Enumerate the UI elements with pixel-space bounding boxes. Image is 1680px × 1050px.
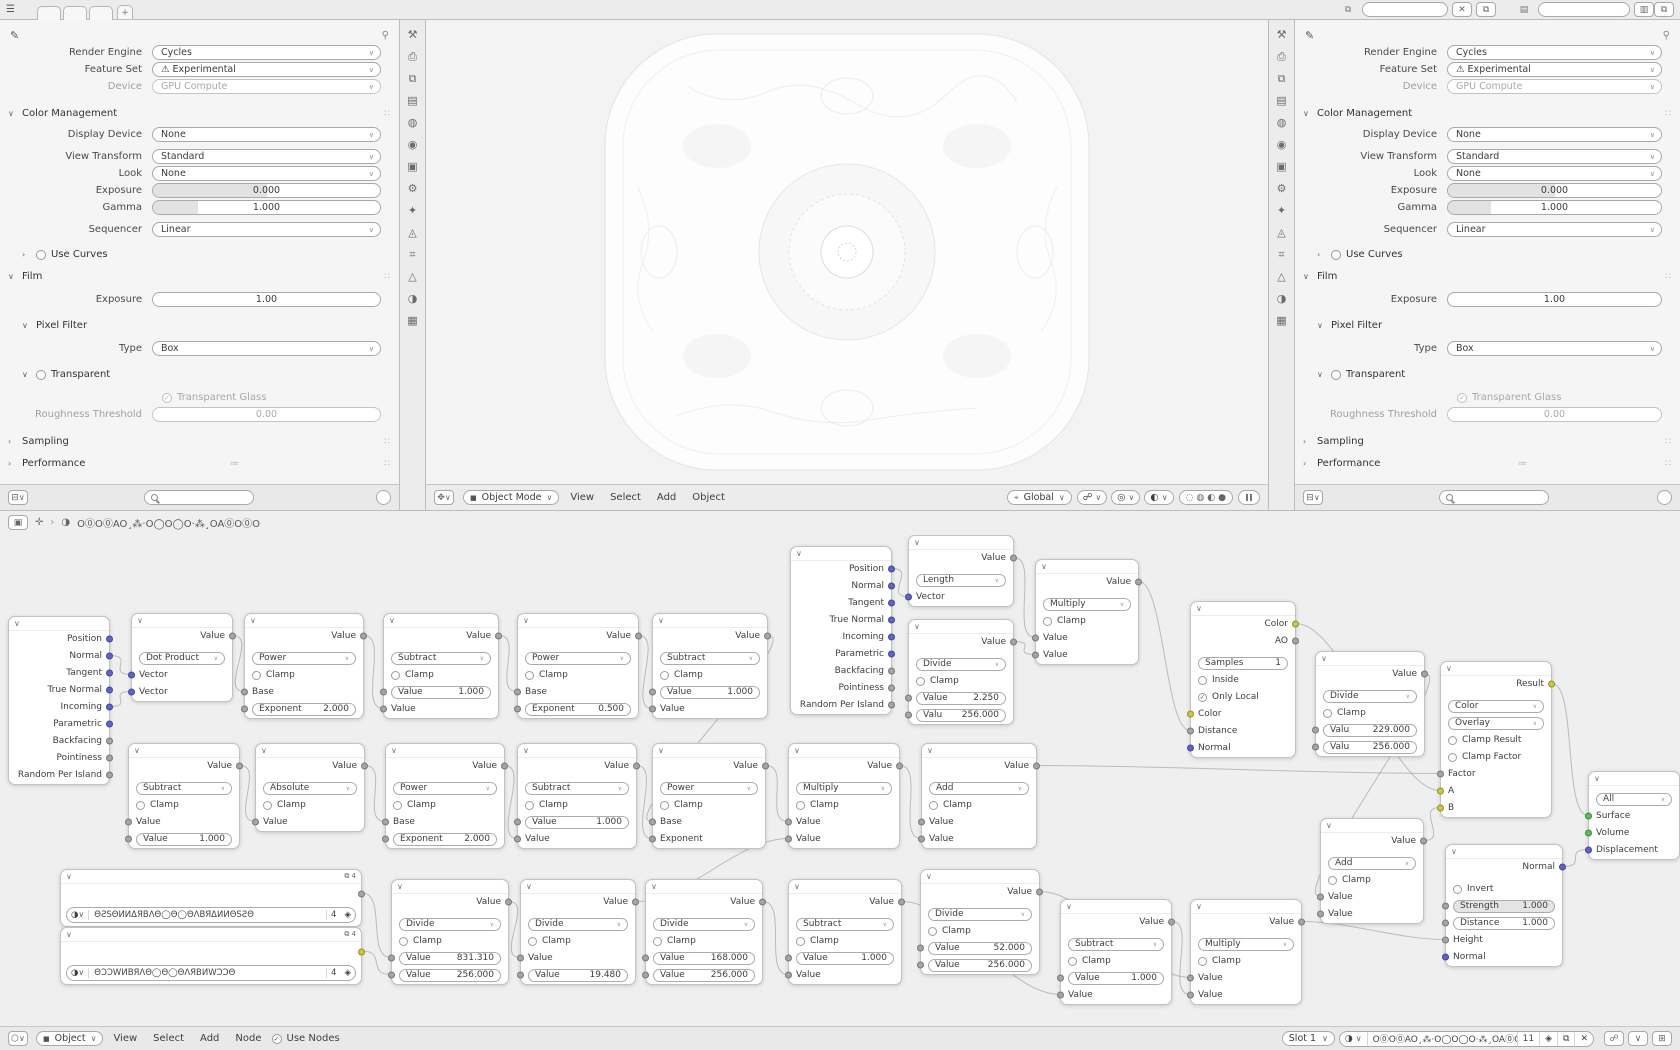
node-sub1[interactable]: ∨ValueSubtract∨ClampValue1.000Value [383, 613, 499, 719]
collapse-chevron-icon[interactable]: ∨ [1041, 562, 1047, 571]
node-div168[interactable]: ∨ValueDivide∨ClampValue168.000Value256.0… [645, 879, 763, 985]
checkbox[interactable]: ✓ [1198, 693, 1207, 702]
checkbox[interactable]: ✓ [162, 393, 172, 403]
node-div19[interactable]: ∨ValueDivide∨ClampValueValue19.480 [520, 879, 636, 985]
prop-exposure[interactable]: 1.00 [152, 292, 381, 307]
prop-sequencer[interactable]: Linear∨ [1447, 222, 1662, 237]
section-transparent[interactable]: ∨Transparent [0, 365, 399, 384]
checkbox[interactable] [136, 801, 145, 810]
grip-icon[interactable]: ∷ [1665, 272, 1672, 282]
node-pow05[interactable]: ∨ValuePower∨ClampBaseExponent0.500 [517, 613, 639, 719]
pin-icon[interactable]: ⚲ [1663, 30, 1670, 41]
prop-render-engine[interactable]: Cycles∨ [152, 45, 381, 60]
workspace-tab-workspace-1[interactable] [37, 6, 61, 20]
node-editor-type-button[interactable]: ⬡∨ [8, 1031, 28, 1046]
socket-out-normal[interactable] [1559, 864, 1566, 871]
node-operation-dropdown[interactable]: Subtract∨ [391, 652, 491, 665]
menu-add[interactable]: Add [198, 1033, 221, 1044]
socket-in-value[interactable] [917, 945, 924, 952]
socket-out-value[interactable] [898, 899, 905, 906]
value-field-exponent[interactable]: Exponent0.500 [525, 703, 631, 716]
node-texB[interactable]: ∨⧉ 4◑∨ΘƆƆWИВЯΛΘ◯Θ◯ΘΛЯВИWƆƆΘ4◈ [60, 927, 362, 985]
socket-in-value[interactable] [905, 695, 912, 702]
checkbox[interactable] [1448, 736, 1457, 745]
collapse-chevron-icon[interactable]: ∨ [134, 746, 140, 755]
prop-exposure[interactable]: 0.000 [152, 183, 381, 198]
data-tab-icon[interactable]: △ [408, 270, 416, 283]
socket-in-factor[interactable] [1437, 771, 1444, 778]
socket-in-valu[interactable] [905, 712, 912, 719]
node-addR[interactable]: ∨ValueAdd∨ClampValueValue [1320, 818, 1424, 924]
prop-gamma[interactable]: 1.000 [1447, 200, 1662, 215]
socket-in-value[interactable] [918, 836, 925, 843]
socket-in-strength[interactable] [1442, 903, 1449, 910]
prop-sequencer[interactable]: Linear∨ [152, 222, 381, 237]
node-g1[interactable]: ∨PositionNormalTangentTrue NormalIncomin… [8, 616, 110, 785]
socket-in-exponent[interactable] [649, 836, 656, 843]
prop-render-engine[interactable]: Cycles∨ [1447, 45, 1662, 60]
constraints-tab-icon[interactable]: ⌗ [409, 248, 415, 261]
socket-out-tangent[interactable] [106, 670, 113, 677]
socket-in-value[interactable] [514, 819, 521, 826]
node-addB[interactable]: ∨ValueAdd∨ClampValueValue [921, 743, 1037, 849]
socket-out-color[interactable] [1292, 621, 1299, 628]
socket-out-value[interactable] [361, 763, 368, 770]
prop-display-device[interactable]: None∨ [152, 127, 381, 142]
socket-in-base[interactable] [382, 819, 389, 826]
socket-out-value[interactable] [236, 763, 243, 770]
socket-in-value[interactable] [642, 972, 649, 979]
filter-options-button[interactable] [1657, 490, 1672, 505]
socket-out-position[interactable] [888, 566, 895, 573]
socket-in-b[interactable] [1437, 805, 1444, 812]
prop-gamma[interactable]: 1.000 [152, 200, 381, 215]
node-operation-dropdown[interactable]: Subtract∨ [1068, 938, 1164, 951]
value-field-value[interactable]: Value256.000 [399, 969, 501, 982]
socket-out-pointiness[interactable] [106, 755, 113, 762]
section-sampling[interactable]: ›Sampling∷ [0, 432, 399, 451]
menu-select[interactable]: Select [608, 492, 643, 503]
checkbox[interactable] [929, 801, 938, 810]
filter-options-button[interactable] [376, 490, 391, 505]
socket-in-value[interactable] [1317, 894, 1324, 901]
node-operation-dropdown[interactable]: Dot Product∨ [139, 652, 225, 665]
view-layer-tab-icon[interactable]: ▤ [1276, 94, 1286, 107]
socket-in-value[interactable] [1032, 635, 1039, 642]
socket-out-true-normal[interactable] [888, 617, 895, 624]
fake-user-shield-icon[interactable]: ◈ [340, 966, 355, 980]
socket-out-value[interactable] [360, 633, 367, 640]
add-workspace-button[interactable]: + [117, 5, 133, 19]
socket-in-surface[interactable] [1585, 813, 1592, 820]
checkbox[interactable] [1448, 753, 1457, 762]
node-operation-dropdown[interactable]: Add∨ [929, 782, 1029, 795]
collapse-chevron-icon[interactable]: ∨ [796, 549, 802, 558]
checkbox[interactable] [399, 937, 408, 946]
node-pow1[interactable]: ∨ValuePower∨ClampBaseExponent2.000 [244, 613, 364, 719]
collapse-chevron-icon[interactable]: ∨ [1196, 604, 1202, 613]
node-abs[interactable]: ∨ValueAbsolute∨ClampValue [255, 743, 365, 832]
socket-out-random-per-island[interactable] [106, 772, 113, 779]
copy-material-button[interactable]: ⧉ [1557, 1032, 1574, 1046]
physics-tab-icon[interactable]: ◬ [408, 226, 416, 239]
socket-in-value[interactable] [785, 819, 792, 826]
socket-in-value[interactable] [252, 819, 259, 826]
shading-dot-3[interactable]: ● [1218, 493, 1226, 503]
tool-tab-icon[interactable]: ⚒ [408, 28, 418, 41]
value-field-value[interactable]: Value1.000 [796, 952, 894, 965]
pin-icon[interactable]: ⚲ [382, 30, 389, 41]
node-bump[interactable]: ∨NormalInvertStrength1.000Distance1.000H… [1445, 844, 1563, 967]
collapse-chevron-icon[interactable]: ∨ [914, 622, 920, 631]
scene-tab-icon[interactable]: ◍ [408, 116, 418, 129]
socket-in-value[interactable] [1187, 992, 1194, 999]
node-operation-dropdown[interactable]: Power∨ [525, 652, 631, 665]
section-performance[interactable]: ›Performance≔∷ [0, 454, 399, 473]
node-dot[interactable]: ∨ValueDot Product∨VectorVector [131, 613, 233, 702]
node-operation-dropdown[interactable]: Divide∨ [528, 918, 628, 931]
socket-in-valu[interactable] [1312, 727, 1319, 734]
value-field-samples[interactable]: Samples1 [1198, 657, 1288, 670]
unlink-material-button[interactable]: ✕ [1574, 1032, 1593, 1046]
socket-in-normal[interactable] [1442, 954, 1449, 961]
overlay-icon[interactable]: ⊞ [1652, 1031, 1672, 1046]
shading-dot-1[interactable]: ◍ [1196, 493, 1204, 503]
checkbox[interactable] [1043, 617, 1052, 626]
data-tab-icon[interactable]: △ [1277, 270, 1285, 283]
value-field-value[interactable]: Value1.000 [136, 833, 232, 846]
section-film[interactable]: ∨Film∷ [1295, 267, 1680, 286]
socket-in-height[interactable] [1442, 937, 1449, 944]
socket-out-value[interactable] [1033, 763, 1040, 770]
prop-device[interactable]: GPU Compute∨ [1447, 79, 1662, 94]
proportional-edit-icon[interactable]: ◎∨ [1111, 490, 1140, 505]
scene-tab-icon[interactable]: ◍ [1277, 116, 1287, 129]
mode-dropdown[interactable]: ■Object Mode∨ [463, 490, 559, 505]
socket-out-value[interactable] [495, 633, 502, 640]
use-curves-checkbox[interactable] [1331, 250, 1341, 260]
prop-exposure[interactable]: 1.00 [1447, 292, 1662, 307]
checkbox[interactable] [660, 671, 669, 680]
collapse-chevron-icon[interactable]: ∨ [927, 746, 933, 755]
editor-type-button[interactable]: ⊟∨ [1303, 490, 1323, 505]
socket-in-exponent[interactable] [241, 706, 248, 713]
value-field-value[interactable]: Value168.000 [653, 952, 755, 965]
menu-select[interactable]: Select [151, 1033, 186, 1044]
prop-display-device[interactable]: None∨ [1447, 127, 1662, 142]
value-field-value[interactable]: Value52.000 [928, 942, 1032, 955]
checkbox[interactable] [916, 677, 925, 686]
fake-user-shield-icon[interactable]: ◈ [1539, 1032, 1557, 1046]
value-field-exponent[interactable]: Exponent2.000 [393, 833, 497, 846]
checkbox[interactable] [263, 801, 272, 810]
socket-in-value[interactable] [918, 819, 925, 826]
collapse-chevron-icon[interactable]: ∨ [523, 746, 529, 755]
node-mulC[interactable]: ∨ValueMultiply∨ClampValueValue [1190, 899, 1302, 1005]
socket-out-value[interactable] [1135, 579, 1142, 586]
copy-scene-button[interactable]: ⧉ [1476, 2, 1496, 17]
modifiers-tab-icon[interactable]: ⚙ [1277, 182, 1287, 195]
node-operation-dropdown[interactable]: Multiply∨ [796, 782, 892, 795]
socket-in-a[interactable] [1437, 788, 1444, 795]
collapse-chevron-icon[interactable]: ∨ [14, 619, 20, 628]
node-operation-dropdown[interactable]: Divide∨ [928, 908, 1032, 921]
prop-look[interactable]: None∨ [152, 166, 381, 181]
socket-out-value[interactable] [501, 763, 508, 770]
node-sub2[interactable]: ∨ValueSubtract∨ClampValue1.000Value [652, 613, 768, 719]
socket-in-value[interactable] [125, 836, 132, 843]
datablock-selector[interactable]: ◑∨ΘƆƆWИВЯΛΘ◯Θ◯ΘΛЯВИWƆƆΘ4◈ [66, 965, 356, 981]
node-operation-dropdown[interactable]: All∨ [1596, 793, 1672, 806]
socket-out-value[interactable] [762, 763, 769, 770]
texture-tab-icon[interactable]: ▦ [1276, 314, 1286, 327]
socket-in-value[interactable] [1057, 975, 1064, 982]
collapse-chevron-icon[interactable]: ∨ [523, 616, 529, 625]
search-input[interactable] [1439, 490, 1549, 505]
socket-out-incoming[interactable] [106, 704, 113, 711]
node-operation-dropdown[interactable]: Power∨ [252, 652, 356, 665]
section-checkbox[interactable] [1331, 370, 1341, 380]
node-operation-dropdown[interactable]: Add∨ [1328, 857, 1416, 870]
socket-out-value[interactable] [1010, 555, 1017, 562]
world-tab-icon[interactable]: ◉ [408, 138, 418, 151]
material-preview-icon[interactable]: ◑∨ [1340, 1032, 1367, 1046]
scene-selector[interactable] [1362, 2, 1448, 17]
render-tab-icon[interactable]: ⎙ [408, 50, 417, 63]
socket-in-value[interactable] [649, 706, 656, 713]
collapse-chevron-icon[interactable]: ∨ [926, 872, 932, 881]
socket-out-result[interactable] [1548, 681, 1555, 688]
datablock-name[interactable]: ΘƧSΘИИΔЯВΛΘ◯Θ◯ΘΛВЯΔИИΘSƧΘ [88, 910, 327, 920]
section-pixel-filter[interactable]: ∨Pixel Filter [0, 316, 399, 335]
socket-in-value[interactable] [388, 955, 395, 962]
grip-icon[interactable]: ∷ [1665, 109, 1672, 119]
socket-out-value[interactable] [1298, 919, 1305, 926]
socket-out-value[interactable] [635, 633, 642, 640]
socket-in-value[interactable] [1057, 992, 1064, 999]
socket-out-value[interactable] [1036, 889, 1043, 896]
node-operation-dropdown[interactable]: Multiply∨ [1043, 598, 1131, 611]
section-performance[interactable]: ›Performance≔∷ [1295, 454, 1680, 473]
socket-in-vector[interactable] [128, 672, 135, 679]
prop-type[interactable]: Box∨ [152, 341, 381, 356]
socket-in-value[interactable] [517, 972, 524, 979]
socket-in-value[interactable] [514, 836, 521, 843]
value-field-valu[interactable]: Valu256.000 [916, 709, 1006, 722]
socket-in-displacement[interactable] [1585, 847, 1592, 854]
value-field-valu[interactable]: Valu256.000 [1323, 741, 1417, 754]
menu-node[interactable]: Node [233, 1033, 263, 1044]
node-operation-dropdown[interactable]: Absolute∨ [263, 782, 357, 795]
node-mulB[interactable]: ∨ValueMultiply∨ClampValueValue [788, 743, 900, 849]
prop-view-transform[interactable]: Standard∨ [152, 149, 381, 164]
node-subB1[interactable]: ∨ValueSubtract∨ClampValueValue1.000 [128, 743, 240, 849]
socket-out-value[interactable] [764, 633, 771, 640]
tool-tab-icon[interactable]: ⚒ [1277, 28, 1287, 41]
checkbox[interactable] [928, 927, 937, 936]
fake-user-shield-icon[interactable]: ◈ [340, 908, 355, 922]
node-canvas[interactable]: ∨PositionNormalTangentTrue NormalIncomin… [0, 535, 1680, 1026]
value-field-valu[interactable]: Valu229.000 [1323, 724, 1417, 737]
checkbox[interactable] [528, 937, 537, 946]
socket-out-backfacing[interactable] [106, 738, 113, 745]
checkbox[interactable] [796, 801, 805, 810]
collapse-chevron-icon[interactable]: ∨ [1066, 902, 1072, 911]
snap-magnet-icon[interactable]: ☍ [1604, 1031, 1624, 1046]
socket-in-base[interactable] [649, 819, 656, 826]
node-subC[interactable]: ∨ValueSubtract∨ClampValue1.000Value [788, 879, 902, 985]
node-editor-icon[interactable]: ▣ [8, 515, 28, 530]
collapse-chevron-icon[interactable]: ∨ [1321, 654, 1327, 663]
node-tree-pin-icon[interactable]: ✛ [35, 517, 43, 528]
prop-exposure[interactable]: 0.000 [1447, 183, 1662, 198]
object-tab-icon[interactable]: ▣ [407, 160, 417, 173]
socket-out-parametric[interactable] [888, 651, 895, 658]
node-powC[interactable]: ∨ValuePower∨ClampBaseExponent [652, 743, 766, 849]
socket-in-value[interactable] [517, 955, 524, 962]
socket-out-value[interactable] [759, 899, 766, 906]
menu-view[interactable]: View [568, 492, 596, 503]
datablock-users-count[interactable]: 4 [327, 966, 340, 980]
prop-device[interactable]: GPU Compute∨ [152, 79, 381, 94]
checkbox[interactable] [252, 671, 261, 680]
view-layer-action-icon-1[interactable]: ⧉ [1654, 2, 1674, 17]
node-operation-dropdown[interactable]: Power∨ [393, 782, 497, 795]
grip-icon[interactable]: ∷ [1665, 437, 1672, 447]
socket-out-position[interactable] [106, 636, 113, 643]
workspace-tab-workspace-3[interactable] [89, 6, 113, 20]
datablock-preview-icon[interactable]: ◑∨ [67, 966, 88, 980]
physics-tab-icon[interactable]: ◬ [1277, 226, 1285, 239]
checkbox[interactable] [660, 801, 669, 810]
socket[interactable] [358, 948, 365, 955]
socket-in-vector[interactable] [905, 594, 912, 601]
socket-in-exponent[interactable] [514, 706, 521, 713]
node-operation-dropdown[interactable]: Divide∨ [399, 918, 501, 931]
menu-object[interactable]: Object [690, 492, 727, 503]
view-layer-icon[interactable]: ▤ [1514, 2, 1534, 17]
panel-use-curves[interactable]: ›Use Curves [1295, 245, 1680, 264]
socket-out-parametric[interactable] [106, 721, 113, 728]
datablock-users-count[interactable]: 4 [327, 908, 340, 922]
node-operation-dropdown[interactable]: Multiply∨ [1198, 938, 1294, 951]
pause-button[interactable] [1238, 490, 1260, 505]
value-field-value[interactable]: Value256.000 [653, 969, 755, 982]
value-field-distance[interactable]: Distance1.000 [1453, 917, 1555, 930]
socket-out-true-normal[interactable] [106, 687, 113, 694]
object-tab-icon[interactable]: ▣ [1276, 160, 1286, 173]
value-field-exponent[interactable]: Exponent2.000 [252, 703, 356, 716]
node-mul1[interactable]: ∨ValueMultiply∨ClampValueValue [1035, 559, 1139, 665]
viewport-editor-type-button[interactable]: ✥∨ [434, 490, 454, 505]
checkbox[interactable] [1453, 885, 1462, 894]
render-preview-icon[interactable]: ◐∨ [1144, 490, 1173, 505]
use-nodes-checkbox[interactable]: ✓Use Nodes [272, 1033, 340, 1044]
socket-in-value[interactable] [1032, 652, 1039, 659]
shading-dot-0[interactable]: ◌ [1186, 493, 1194, 503]
value-field-value[interactable]: Value1.000 [1068, 972, 1164, 985]
socket-out-value[interactable] [1420, 838, 1427, 845]
socket-in-distance[interactable] [1187, 728, 1194, 735]
prop-type[interactable]: Box∨ [1447, 341, 1662, 356]
collapse-chevron-icon[interactable]: ∨ [391, 746, 397, 755]
view-layer-action-icon-0[interactable]: ▥ [1634, 2, 1654, 17]
collapse-chevron-icon[interactable]: ∨ [651, 882, 657, 891]
check-transparent-glass[interactable]: ✓Transparent Glass [1295, 389, 1680, 406]
value-field-value[interactable]: Value1.000 [391, 686, 491, 699]
socket-in-value[interactable] [642, 955, 649, 962]
socket-out-normal[interactable] [888, 583, 895, 590]
prop-roughness-threshold[interactable]: 0.00 [152, 407, 381, 422]
menu-add[interactable]: Add [655, 492, 678, 503]
socket-out-value[interactable] [229, 633, 236, 640]
node-div2250[interactable]: ∨ValueDivide∨ClampValue2.250Valu256.000 [908, 619, 1014, 725]
collapse-chevron-icon[interactable]: ∨ [914, 538, 920, 547]
node-mix[interactable]: ∨ResultColor∨Overlay∨Clamp ResultClamp F… [1440, 661, 1552, 818]
value-field-value[interactable]: Value19.480 [528, 969, 628, 982]
app-menu-icon[interactable]: ☰ [6, 4, 15, 15]
socket-in-vector[interactable] [128, 689, 135, 696]
socket-in-value[interactable] [380, 689, 387, 696]
node-ao[interactable]: ∨ColorAOSamples1Inside✓Only LocalColorDi… [1190, 601, 1296, 758]
node-div229[interactable]: ∨ValueDivide∨ClampValu229.000Valu256.000 [1315, 651, 1425, 757]
socket-in-value[interactable] [380, 706, 387, 713]
socket-out-pointiness[interactable] [888, 685, 895, 692]
texture-tab-icon[interactable]: ▦ [407, 314, 417, 327]
search-input[interactable] [144, 490, 254, 505]
node-div52[interactable]: ∨ValueDivide∨ClampValue52.000Value256.00… [920, 869, 1040, 975]
checkbox[interactable] [1068, 957, 1077, 966]
socket-in-exponent[interactable] [382, 836, 389, 843]
socket-in-volume[interactable] [1585, 830, 1592, 837]
node-operation-dropdown[interactable]: Divide∨ [916, 658, 1006, 671]
collapse-chevron-icon[interactable]: ∨ [66, 930, 72, 939]
prop-roughness-threshold[interactable]: 0.00 [1447, 407, 1662, 422]
socket-out-value[interactable] [896, 763, 903, 770]
grip-icon[interactable]: ∷ [1665, 459, 1672, 469]
value-field-strength[interactable]: Strength1.000 [1453, 900, 1555, 913]
node-div831[interactable]: ∨ValueDivide∨ClampValue831.310Value256.0… [391, 879, 509, 985]
socket-in-value[interactable] [649, 689, 656, 696]
prop-feature-set[interactable]: ⚠ Experimental∨ [152, 62, 381, 77]
prop-look[interactable]: None∨ [1447, 166, 1662, 181]
checkbox[interactable]: ✓ [1457, 393, 1467, 403]
socket-out-tangent[interactable] [888, 600, 895, 607]
collapse-chevron-icon[interactable]: ∨ [250, 616, 256, 625]
snap-icon[interactable]: ☍∨ [1077, 490, 1107, 505]
collapse-chevron-icon[interactable]: ∨ [397, 882, 403, 891]
material-name-field[interactable]: O⓪O⓪AO¸⁂·O◯O◯O·⁂¸OA⓪O⓪O [1367, 1032, 1517, 1046]
socket-out-value[interactable] [1421, 671, 1428, 678]
socket-in-valu[interactable] [1312, 744, 1319, 751]
node-powB[interactable]: ∨ValuePower∨ClampBaseExponent2.000 [385, 743, 505, 849]
socket-out-value[interactable] [632, 899, 639, 906]
viewport-3d[interactable]: ✥∨ ■Object Mode∨ ViewSelectAddObject ⌖Gl… [426, 20, 1268, 510]
socket-out-backfacing[interactable] [888, 668, 895, 675]
collapse-chevron-icon[interactable]: ∨ [137, 616, 143, 625]
panel-use-curves[interactable]: ›Use Curves [0, 245, 399, 264]
socket-in-value[interactable] [1317, 911, 1324, 918]
section-color-management[interactable]: ∨Color Management∷ [0, 104, 399, 123]
checkbox[interactable] [1198, 957, 1207, 966]
node-len[interactable]: ∨ValueLength∨Vector [908, 535, 1014, 607]
grip-icon[interactable]: ∷ [384, 109, 391, 119]
collapse-chevron-icon[interactable]: ∨ [526, 882, 532, 891]
socket-out-value[interactable] [1168, 919, 1175, 926]
shading-mode-switch[interactable]: ◌◍◐● [1179, 490, 1233, 505]
prop-view-transform[interactable]: Standard∨ [1447, 149, 1662, 164]
checkbox[interactable] [1328, 876, 1337, 885]
